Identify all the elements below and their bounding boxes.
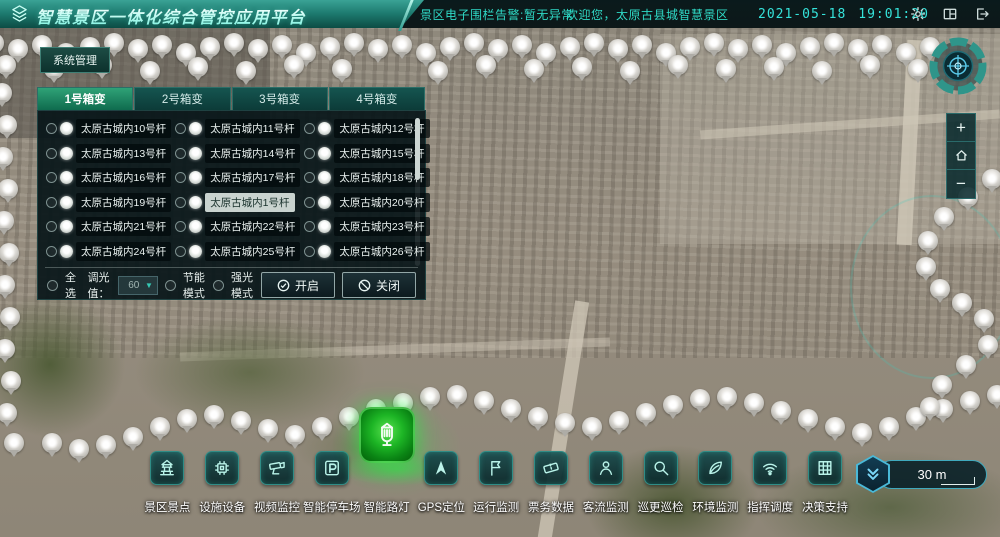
- camera-icon[interactable]: [260, 451, 294, 485]
- toolbar-item-环境监测[interactable]: 环境监测: [688, 451, 743, 515]
- bulb-icon: [318, 220, 331, 233]
- patrol-icon[interactable]: [644, 451, 678, 485]
- lamp-item[interactable]: 太原古城内20号杆: [304, 192, 429, 213]
- lamp-label: 太原古城内24号杆: [76, 242, 171, 261]
- streetlamp-marker[interactable]: [920, 397, 940, 417]
- streetlamp-marker[interactable]: [982, 169, 1000, 189]
- lamp-radio[interactable]: [46, 172, 57, 183]
- tab-2号箱变[interactable]: 2号箱变: [134, 87, 230, 110]
- lamp-label: 太原古城内19号杆: [76, 193, 171, 212]
- streetlamp-marker[interactable]: [872, 35, 892, 55]
- fence-alert-text: 景区电子围栏告警:暂无异常: [420, 0, 574, 28]
- streetlamp-marker[interactable]: [752, 35, 772, 55]
- app-window: 智慧景区一体化综合管控应用平台 景区电子围栏告警:暂无异常 欢迎您，太原古县城智…: [0, 0, 1000, 537]
- lamp-radio[interactable]: [304, 148, 315, 159]
- streetlamp-marker[interactable]: [312, 417, 332, 437]
- lamp-label: 太原古城内11号杆: [205, 119, 299, 138]
- header-actions: [910, 0, 990, 28]
- bulb-icon: [60, 147, 73, 160]
- header-bar: 智慧景区一体化综合管控应用平台 景区电子围栏告警:暂无异常 欢迎您，太原古县城智…: [0, 0, 1000, 28]
- streetlamp-marker[interactable]: [476, 55, 496, 75]
- streetlamp-marker[interactable]: [0, 179, 18, 199]
- streetlamp-marker[interactable]: [0, 339, 15, 359]
- streetlamp-marker[interactable]: [930, 279, 950, 299]
- streetlamp-marker[interactable]: [744, 393, 764, 413]
- streetlamp-marker[interactable]: [798, 409, 818, 429]
- toolbar-label: GPS定位: [418, 499, 465, 515]
- streetlamp-marker[interactable]: [248, 39, 268, 59]
- streetlamp-marker[interactable]: [632, 35, 652, 55]
- lamp-item[interactable]: 太原古城内13号杆: [46, 143, 171, 164]
- lamp-radio[interactable]: [304, 197, 315, 208]
- toolbar-item-运行监测[interactable]: 运行监测: [469, 451, 524, 515]
- lamp-radio[interactable]: [46, 221, 57, 232]
- zoom-out-button[interactable]: −: [947, 170, 975, 198]
- map-scale-widget: 30 m: [856, 455, 987, 493]
- map-zoom-controls: + −: [946, 113, 976, 199]
- lamp-radio[interactable]: [46, 197, 57, 208]
- lamp-item[interactable]: 太原古城内24号杆: [46, 241, 171, 262]
- streetlamp-marker[interactable]: [501, 399, 521, 419]
- leaf-icon[interactable]: [698, 451, 732, 485]
- bulb-icon: [189, 220, 202, 233]
- toolbar-item-客流监测[interactable]: 客流监测: [578, 451, 633, 515]
- lamp-label: 太原古城内1号杆: [205, 193, 294, 212]
- toolbar-item-票务数据[interactable]: 票务数据: [524, 451, 579, 515]
- streetlamp-marker[interactable]: [204, 405, 224, 425]
- visitor-icon[interactable]: [589, 451, 623, 485]
- lamp-item[interactable]: 太原古城内14号杆: [175, 143, 300, 164]
- dim-value-label: 调光值：: [88, 269, 111, 301]
- streetlamp-marker[interactable]: [584, 33, 604, 53]
- streetlamp-marker[interactable]: [140, 61, 160, 81]
- streetlamp-marker[interactable]: [918, 231, 938, 251]
- bulb-icon: [60, 220, 73, 233]
- settings-icon[interactable]: [910, 6, 926, 22]
- bulb-icon: [189, 196, 202, 209]
- zoom-in-button[interactable]: +: [947, 114, 975, 142]
- streetlamp-marker[interactable]: [932, 375, 952, 395]
- app-title: 智慧景区一体化综合管控应用平台: [36, 4, 306, 28]
- lamp-radio[interactable]: [175, 246, 186, 257]
- lamp-radio[interactable]: [175, 148, 186, 159]
- streetlamp-marker[interactable]: [860, 55, 880, 75]
- toolbar-label: 指挥调度: [747, 499, 793, 515]
- scrollbar-track[interactable]: [415, 118, 420, 266]
- streetlamp-marker[interactable]: [69, 439, 89, 459]
- dim-value-select[interactable]: 60 ▼: [118, 276, 158, 295]
- bulb-icon: [318, 122, 331, 135]
- lamp-item[interactable]: 太原古城内12号杆: [304, 118, 429, 139]
- streetlamp-marker[interactable]: [474, 391, 494, 411]
- streetlamp-marker[interactable]: [608, 39, 628, 59]
- split-screen-icon[interactable]: [942, 6, 958, 22]
- lamp-radio[interactable]: [304, 172, 315, 183]
- streetlamp-marker[interactable]: [555, 413, 575, 433]
- bulb-icon: [189, 245, 202, 258]
- streetlamp-marker[interactable]: [440, 37, 460, 57]
- streetlamp-marker[interactable]: [978, 335, 998, 355]
- open-button[interactable]: 开启: [261, 272, 335, 298]
- streetlamp-marker[interactable]: [934, 207, 954, 227]
- streetlamp-marker[interactable]: [0, 147, 13, 167]
- dim-value: 60: [128, 280, 139, 291]
- route-flag-icon[interactable]: [479, 451, 513, 485]
- streetlamp-marker[interactable]: [285, 425, 305, 445]
- chip-icon[interactable]: [205, 451, 239, 485]
- streetlamp-marker[interactable]: [717, 387, 737, 407]
- parking-icon[interactable]: [315, 451, 349, 485]
- streetlamp-marker[interactable]: [704, 33, 724, 53]
- streetlamp-marker[interactable]: [512, 35, 532, 55]
- lamp-item[interactable]: 太原古城内25号杆: [175, 241, 300, 262]
- streetlamp-marker[interactable]: [177, 409, 197, 429]
- toolbar-label: 环境监测: [692, 499, 738, 515]
- streetlamp-marker[interactable]: [680, 37, 700, 57]
- streetlamp-marker[interactable]: [200, 37, 220, 57]
- toolbar-item-视频监控[interactable]: 视频监控: [250, 451, 305, 515]
- lamp-item[interactable]: 太原古城内1号杆: [175, 192, 300, 213]
- streetlamp-marker[interactable]: [272, 35, 292, 55]
- streetlamp-marker[interactable]: [150, 417, 170, 437]
- streetlamp-marker[interactable]: [368, 39, 388, 59]
- streetlamp-marker[interactable]: [764, 57, 784, 77]
- scale-readout: 30 m: [877, 460, 987, 489]
- logo-icon: [10, 4, 29, 28]
- check-circle-icon: [277, 279, 290, 292]
- toolbar-item-决策支持[interactable]: 决策支持: [798, 451, 853, 515]
- lamp-label: 太原古城内17号杆: [205, 168, 300, 187]
- lamp-item[interactable]: 太原古城内19号杆: [46, 192, 171, 213]
- panel-divider: [45, 267, 418, 268]
- toolbar-label: 巡更巡检: [638, 499, 684, 515]
- streetlamp-marker[interactable]: [572, 57, 592, 77]
- select-all-label: 全选: [65, 269, 77, 301]
- lamp-radio[interactable]: [175, 197, 186, 208]
- streetlamp-marker[interactable]: [0, 33, 4, 53]
- streetlamp-icon[interactable]: [359, 407, 415, 463]
- streetlamp-marker[interactable]: [464, 33, 484, 53]
- lamp-item[interactable]: 太原古城内11号杆: [175, 118, 300, 139]
- toolbar-item-景区景点[interactable]: 景区景点: [140, 451, 195, 515]
- lamp-radio[interactable]: [304, 221, 315, 232]
- streetlamp-marker[interactable]: [416, 43, 436, 63]
- streetlamp-marker[interactable]: [879, 417, 899, 437]
- streetlamp-marker[interactable]: [447, 385, 467, 405]
- toolbar-item-指挥调度[interactable]: 指挥调度: [743, 451, 798, 515]
- home-icon: [954, 148, 969, 163]
- streetlamp-marker[interactable]: [96, 435, 116, 455]
- lamp-item[interactable]: 太原古城内17号杆: [175, 167, 300, 188]
- toolbar-item-GPS定位[interactable]: GPS定位: [414, 451, 469, 515]
- toolbar-item-设施设备[interactable]: 设施设备: [195, 451, 250, 515]
- streetlamp-marker[interactable]: [332, 59, 352, 79]
- streetlamp-marker[interactable]: [524, 59, 544, 79]
- streetlamp-marker[interactable]: [428, 61, 448, 81]
- streetlamp-marker[interactable]: [152, 35, 172, 55]
- date-text: 2021-05-18: [758, 7, 846, 22]
- toolbar-item-智能停车场[interactable]: 智能停车场: [304, 451, 359, 515]
- streetlamp-marker[interactable]: [392, 35, 412, 55]
- lamp-item[interactable]: 太原古城内22号杆: [175, 216, 300, 237]
- bulb-icon: [318, 196, 331, 209]
- transformer-tabs: 1号箱变2号箱变3号箱变4号箱变: [37, 87, 426, 110]
- datetime: 2021-05-18 19:01:20: [758, 0, 929, 28]
- chevron-down-icon: ▼: [145, 281, 153, 290]
- panel-footer: 全选 调光值： 60 ▼ 节能模式 强光模式 开启 关闭: [47, 272, 416, 298]
- toolbar-label: 票务数据: [528, 499, 574, 515]
- decision-icon[interactable]: [808, 451, 842, 485]
- streetlamp-marker[interactable]: [690, 389, 710, 409]
- streetlamp-marker[interactable]: [620, 61, 640, 81]
- home-button[interactable]: [947, 142, 975, 170]
- tab-3号箱变[interactable]: 3号箱变: [232, 87, 328, 110]
- lamp-radio[interactable]: [304, 123, 315, 134]
- ticket-icon[interactable]: [534, 451, 568, 485]
- streetlamp-marker[interactable]: [825, 417, 845, 437]
- toolbar-label: 运行监测: [473, 499, 519, 515]
- lamp-list: 太原古城内10号杆太原古城内11号杆太原古城内12号杆太原古城内13号杆太原古城…: [46, 118, 409, 262]
- bottom-toolbar: 景区景点设施设备视频监控智能停车场智能路灯GPS定位运行监测票务数据客流监测巡更…: [140, 451, 852, 515]
- streetlamp-marker[interactable]: [771, 401, 791, 421]
- lamp-radio[interactable]: [175, 123, 186, 134]
- toolbar-item-巡更巡检[interactable]: 巡更巡检: [633, 451, 688, 515]
- toolbar-label: 决策支持: [802, 499, 848, 515]
- lamp-label: 太原古城内14号杆: [205, 144, 300, 163]
- lamp-item[interactable]: 太原古城内26号杆: [304, 241, 429, 262]
- bulb-icon: [60, 196, 73, 209]
- bulb-icon: [189, 122, 202, 135]
- select-all-radio[interactable]: [47, 280, 58, 291]
- scrollbar-thumb[interactable]: [415, 118, 420, 180]
- lamp-label: 太原古城内13号杆: [76, 144, 171, 163]
- streetlamp-marker[interactable]: [974, 309, 994, 329]
- dispatch-icon[interactable]: [753, 451, 787, 485]
- toolbar-label: 视频监控: [254, 499, 300, 515]
- streetlamp-marker[interactable]: [812, 61, 832, 81]
- streetlamp-marker[interactable]: [320, 37, 340, 57]
- lamp-radio[interactable]: [46, 246, 57, 257]
- double-chevron-down-icon: [864, 465, 882, 483]
- bulb-icon: [318, 147, 331, 160]
- streetlamp-marker[interactable]: [344, 33, 364, 53]
- streetlamp-marker[interactable]: [188, 57, 208, 77]
- lamp-item[interactable]: 太原古城内18号杆: [304, 167, 429, 188]
- streetlamp-marker[interactable]: [609, 411, 629, 431]
- streetlamp-marker[interactable]: [668, 55, 688, 75]
- bulb-icon: [60, 245, 73, 258]
- streetlamp-marker[interactable]: [716, 59, 736, 79]
- bulb-icon: [318, 245, 331, 258]
- streetlamp-marker[interactable]: [908, 59, 928, 79]
- streetlamp-marker[interactable]: [258, 419, 278, 439]
- streetlamp-control-panel: 太原古城内10号杆太原古城内11号杆太原古城内12号杆太原古城内13号杆太原古城…: [37, 110, 426, 300]
- streetlamp-marker[interactable]: [0, 275, 15, 295]
- bulb-icon: [318, 171, 331, 184]
- bulb-icon: [189, 147, 202, 160]
- strong-mode-radio[interactable]: [213, 280, 224, 291]
- lamp-item[interactable]: 太原古城内15号杆: [304, 143, 429, 164]
- streetlamp-marker[interactable]: [4, 433, 24, 453]
- system-management-button[interactable]: 系统管理: [40, 47, 110, 73]
- lamp-item[interactable]: 太原古城内23号杆: [304, 216, 429, 237]
- toolbar-label: 设施设备: [199, 499, 245, 515]
- streetlamp-marker[interactable]: [728, 39, 748, 59]
- lamp-label: 太原古城内25号杆: [205, 242, 300, 261]
- welcome-text: 欢迎您，太原古县城智慧景区: [566, 0, 729, 28]
- bulb-icon: [60, 122, 73, 135]
- toolbar-label: 景区景点: [144, 499, 190, 515]
- streetlamp-marker[interactable]: [123, 427, 143, 447]
- tab-4号箱变[interactable]: 4号箱变: [329, 87, 425, 110]
- streetlamp-marker[interactable]: [128, 39, 148, 59]
- logout-icon[interactable]: [974, 6, 990, 22]
- streetlamp-marker[interactable]: [1, 371, 21, 391]
- lamp-label: 太原古城内22号杆: [205, 217, 300, 236]
- lamp-radio[interactable]: [175, 172, 186, 183]
- streetlamp-marker[interactable]: [582, 417, 602, 437]
- streetlamp-marker[interactable]: [987, 385, 1000, 405]
- streetlamp-marker[interactable]: [800, 37, 820, 57]
- compass-widget[interactable]: [928, 36, 988, 96]
- lamp-label: 太原古城内21号杆: [76, 217, 171, 236]
- cancel-circle-icon: [358, 279, 371, 292]
- streetlamp-marker[interactable]: [0, 211, 14, 231]
- streetlamp-marker[interactable]: [42, 433, 62, 453]
- streetlamp-marker[interactable]: [663, 395, 683, 415]
- scale-bar: [941, 477, 975, 485]
- lamp-item[interactable]: 太原古城内21号杆: [46, 216, 171, 237]
- streetlamp-marker[interactable]: [528, 407, 548, 427]
- streetlamp-marker[interactable]: [916, 257, 936, 277]
- streetlamp-marker[interactable]: [824, 33, 844, 53]
- streetlamp-marker[interactable]: [0, 307, 20, 327]
- streetlamp-marker[interactable]: [0, 83, 12, 103]
- streetlamp-marker[interactable]: [0, 243, 19, 263]
- toolbar-label: 智能停车场: [303, 499, 361, 515]
- streetlamp-marker[interactable]: [284, 55, 304, 75]
- pagoda-icon[interactable]: [150, 451, 184, 485]
- strong-mode-label: 强光模式: [231, 269, 254, 301]
- lamp-item[interactable]: 太原古城内10号杆: [46, 118, 171, 139]
- streetlamp-marker[interactable]: [560, 37, 580, 57]
- lamp-radio[interactable]: [175, 221, 186, 232]
- toolbar-item-智能路灯[interactable]: 智能路灯: [359, 451, 414, 515]
- bulb-icon: [60, 171, 73, 184]
- streetlamp-marker[interactable]: [236, 61, 256, 81]
- streetlamp-marker[interactable]: [956, 355, 976, 375]
- tab-1号箱变[interactable]: 1号箱变: [37, 87, 133, 110]
- lamp-item[interactable]: 太原古城内16号杆: [46, 167, 171, 188]
- eco-mode-label: 节能模式: [183, 269, 206, 301]
- streetlamp-marker[interactable]: [0, 403, 17, 423]
- close-button[interactable]: 关闭: [342, 272, 416, 298]
- lamp-radio[interactable]: [46, 123, 57, 134]
- streetlamp-marker[interactable]: [231, 411, 251, 431]
- lamp-label: 太原古城内16号杆: [76, 168, 171, 187]
- lamp-radio[interactable]: [46, 148, 57, 159]
- lamp-radio[interactable]: [304, 246, 315, 257]
- lamp-label: 太原古城内10号杆: [76, 119, 171, 138]
- scale-badge[interactable]: [856, 455, 890, 493]
- gps-icon[interactable]: [424, 451, 458, 485]
- streetlamp-marker[interactable]: [960, 391, 980, 411]
- streetlamp-marker[interactable]: [952, 293, 972, 313]
- bulb-icon: [189, 171, 202, 184]
- streetlamp-marker[interactable]: [0, 55, 16, 75]
- toolbar-label: 客流监测: [583, 499, 629, 515]
- eco-mode-radio[interactable]: [165, 280, 176, 291]
- streetlamp-marker[interactable]: [224, 33, 244, 53]
- toolbar-label: 智能路灯: [364, 499, 410, 515]
- streetlamp-marker[interactable]: [852, 423, 872, 443]
- streetlamp-marker[interactable]: [636, 403, 656, 423]
- streetlamp-marker[interactable]: [0, 115, 17, 135]
